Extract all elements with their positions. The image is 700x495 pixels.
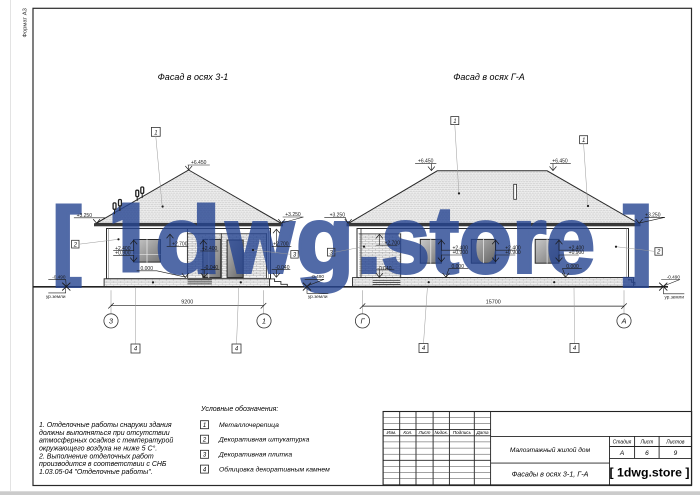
- svg-text:2. Выполнение отделочных работ: 2. Выполнение отделочных работ: [38, 452, 154, 460]
- svg-text:+2.700: +2.700: [384, 241, 400, 247]
- svg-text:Декоративная плитка: Декоративная плитка: [218, 452, 292, 459]
- svg-text:+2.700: +2.700: [172, 242, 188, 248]
- svg-text:[: [: [52, 191, 81, 288]
- svg-text:+0.900: +0.900: [505, 250, 521, 256]
- svg-text:+3.250: +3.250: [77, 213, 93, 219]
- svg-text:-0.040: -0.040: [275, 265, 289, 271]
- svg-text:1: 1: [262, 317, 266, 326]
- svg-text:0.000: 0.000: [566, 264, 579, 270]
- svg-text:А: А: [620, 317, 626, 326]
- svg-text:+2.400: +2.400: [202, 246, 218, 252]
- svg-text:1: 1: [154, 130, 157, 136]
- svg-text:9: 9: [674, 450, 678, 457]
- svg-text:+0.900: +0.900: [569, 250, 585, 256]
- svg-text:ур.земли: ур.земли: [665, 295, 685, 300]
- svg-text:0.000: 0.000: [140, 266, 153, 272]
- svg-text:Фасад в осях 3-1: Фасад в осях 3-1: [158, 72, 229, 82]
- svg-text:+3.250: +3.250: [285, 212, 301, 218]
- svg-text:А: А: [619, 450, 624, 457]
- svg-text:Малоэтажный жилой дом: Малоэтажный жилой дом: [510, 446, 591, 454]
- svg-text:Металлочерепица: Металлочерепица: [219, 422, 279, 429]
- svg-text:Кол.: Кол.: [403, 430, 412, 435]
- svg-text:1.03.05-04 "Отделочные работы": 1.03.05-04 "Отделочные работы".: [39, 468, 153, 476]
- svg-text:2: 2: [202, 438, 207, 444]
- svg-text:атмосферных осадков с температ: атмосферных осадков с температурой: [39, 437, 173, 445]
- svg-text:15700: 15700: [486, 300, 501, 306]
- svg-text:-0.040: -0.040: [377, 266, 391, 272]
- svg-text:Дата: Дата: [475, 430, 489, 435]
- svg-text:2: 2: [73, 242, 78, 248]
- svg-text:2: 2: [656, 250, 661, 256]
- svg-text:1: 1: [203, 423, 206, 429]
- svg-text:+0.900: +0.900: [452, 250, 468, 256]
- svg-text:g: g: [296, 188, 354, 294]
- svg-text:Подпись: Подпись: [453, 430, 472, 435]
- svg-text:w: w: [225, 188, 295, 294]
- svg-text:Декоративная штукатурка: Декоративная штукатурка: [218, 437, 310, 444]
- svg-text:ур.земли: ур.земли: [308, 294, 328, 299]
- svg-text:Условные обозначения:: Условные обозначения:: [200, 405, 278, 413]
- svg-text:должны выполняться при отсутст: должны выполняться при отсутствии: [39, 429, 170, 437]
- svg-text:-0.490: -0.490: [311, 274, 325, 279]
- svg-text:+6.450: +6.450: [418, 159, 434, 165]
- svg-text:9200: 9200: [181, 299, 193, 305]
- svg-text:[ 1dwg.store ]: [ 1dwg.store ]: [610, 466, 690, 480]
- svg-text:]: ]: [623, 191, 652, 288]
- svg-text:Стадия: Стадия: [613, 440, 632, 446]
- svg-text:Лист: Лист: [418, 430, 431, 435]
- svg-text:Изм.: Изм.: [387, 430, 397, 435]
- svg-text:+3.250: +3.250: [330, 213, 346, 219]
- svg-text:окружающего воздуха не ниже 5: окружающего воздуха не ниже 5 С°.: [39, 445, 157, 453]
- svg-text:1: 1: [453, 119, 456, 125]
- svg-text:ур.земли: ур.земли: [46, 294, 66, 299]
- svg-text:-0.490: -0.490: [52, 274, 66, 279]
- svg-text:d: d: [155, 188, 221, 294]
- svg-text:+3.250: +3.250: [645, 213, 661, 219]
- svg-text:№док.: №док.: [435, 430, 449, 435]
- svg-text:Фасады в осях 3-1, Г-А: Фасады в осях 3-1, Г-А: [512, 469, 589, 478]
- svg-text:6: 6: [645, 450, 649, 457]
- svg-text:Облицовка декоративным камнем: Облицовка декоративным камнем: [219, 465, 330, 473]
- svg-text:1: 1: [582, 138, 585, 144]
- svg-text:+2.700: +2.700: [273, 242, 289, 248]
- svg-text:производится в соответствии с: производится в соответствии с СНБ: [39, 460, 167, 468]
- svg-text:+6.450: +6.450: [191, 160, 207, 166]
- svg-text:Лист: Лист: [639, 440, 653, 446]
- svg-text:Формат А3: Формат А3: [23, 8, 29, 37]
- svg-text:+6.450: +6.450: [552, 159, 568, 165]
- svg-text:1. Отделочные работы снаружи з: 1. Отделочные работы снаружи здания: [39, 421, 172, 429]
- svg-text:0.000: 0.000: [451, 264, 464, 270]
- svg-text:Листов: Листов: [665, 440, 685, 446]
- svg-text:+0.900: +0.900: [115, 251, 131, 257]
- svg-text:Фасад в осях Г-А: Фасад в осях Г-А: [453, 72, 525, 82]
- svg-text:-0.040: -0.040: [204, 265, 218, 271]
- svg-text:-0.490: -0.490: [667, 274, 681, 279]
